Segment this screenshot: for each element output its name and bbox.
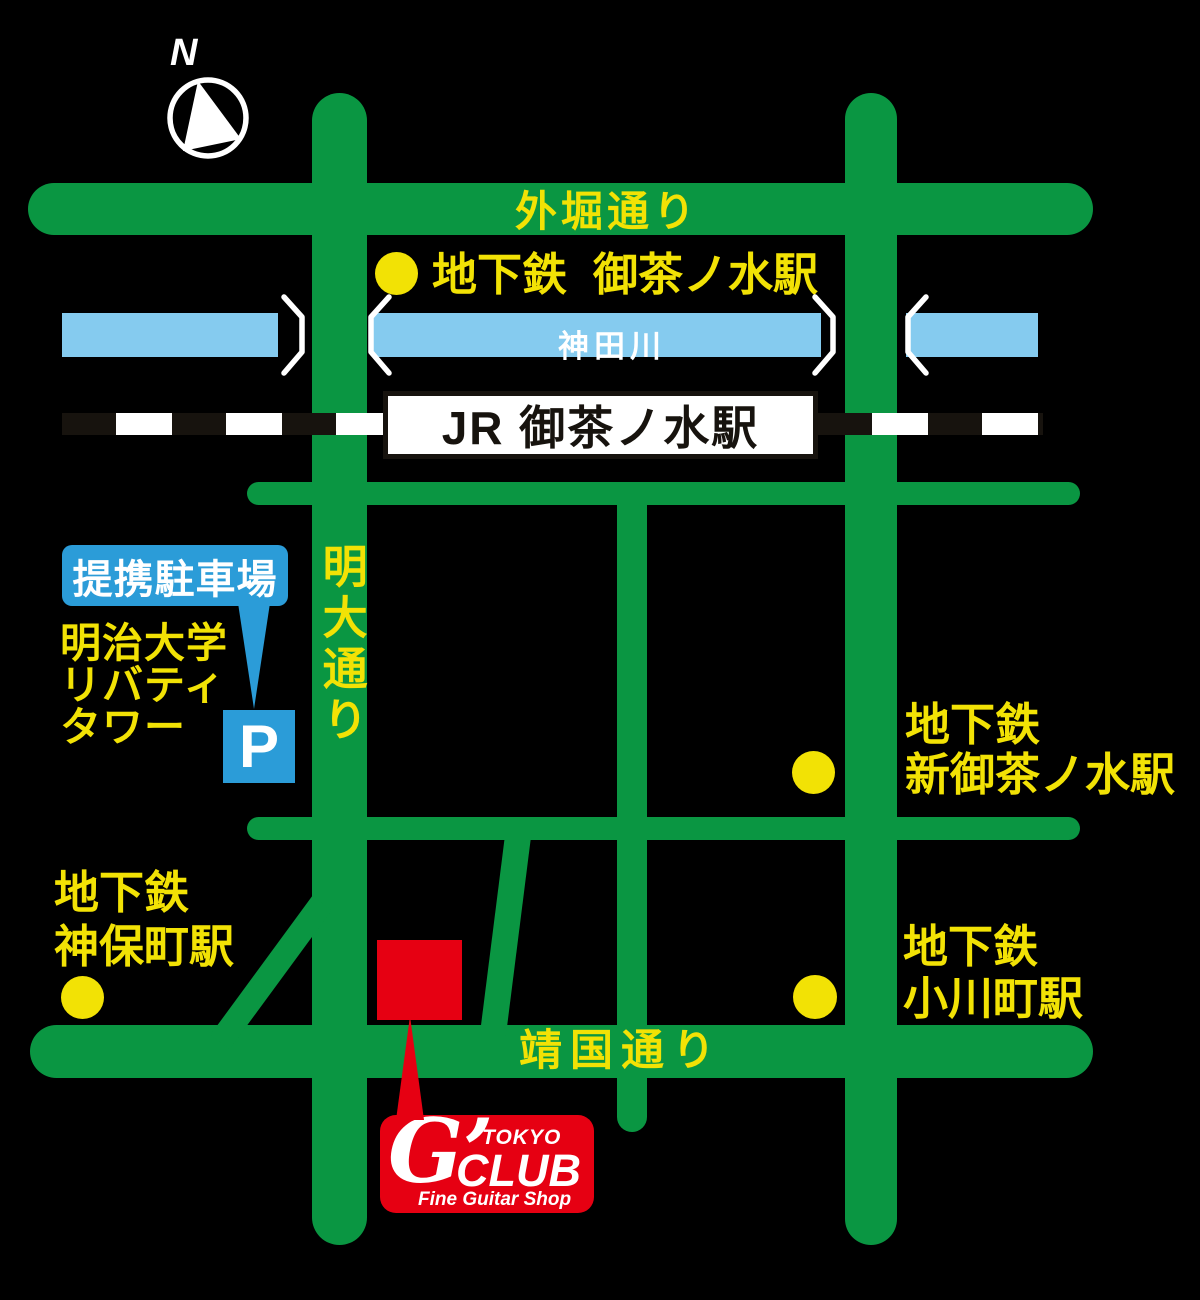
- bridge-bracket-icon: [908, 297, 926, 373]
- shop-pointer: [396, 1016, 424, 1120]
- bridge-bracket-icon: [284, 297, 302, 373]
- bridge-bracket-icon: [815, 297, 833, 373]
- access-map: JR 御茶ノ水駅 神田川 外堀通り 明大通り 靖国通り 地下鉄 御茶ノ水駅 地下…: [0, 0, 1200, 1300]
- north-label: N: [170, 32, 197, 75]
- decorations-layer: [0, 0, 1200, 1300]
- bridge-bracket-icon: [371, 297, 389, 373]
- parking-pointer: [238, 603, 270, 709]
